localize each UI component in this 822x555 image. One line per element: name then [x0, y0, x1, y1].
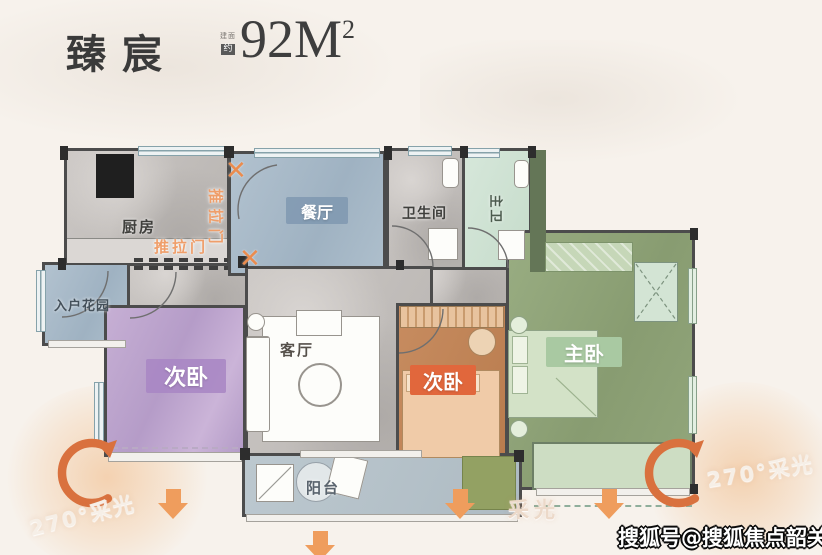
- label-entry-garden: 入户花园: [54, 295, 110, 314]
- window-sill: [48, 340, 126, 348]
- label-living: 客厅: [280, 339, 314, 360]
- daylight-label: 采光: [508, 494, 560, 524]
- sink: [498, 230, 525, 260]
- page-title: 臻宸: [66, 22, 178, 80]
- area-prefix-bottom: 约: [221, 44, 234, 55]
- label-bedroom-middle: 次卧: [410, 365, 476, 395]
- window: [688, 268, 697, 324]
- pillow: [512, 336, 528, 364]
- planter-box: [256, 464, 294, 502]
- tv-cabinet: [296, 310, 342, 336]
- nightstand: [510, 420, 528, 438]
- wall-block: [396, 260, 404, 270]
- wall-block: [460, 146, 468, 158]
- label-bathroom: 卫生间: [402, 203, 447, 223]
- label-kitchen: 厨房: [122, 216, 156, 237]
- window: [138, 146, 230, 156]
- watermark: 搜狐号@搜狐焦点韶关站: [618, 522, 822, 552]
- window: [254, 148, 380, 158]
- bay-window-sill: [108, 452, 242, 462]
- label-master-bedroom: 主卧: [546, 337, 622, 367]
- wall-block: [690, 484, 698, 494]
- balcony-sill: [246, 514, 518, 522]
- area-prefix-top: 建面: [220, 31, 236, 41]
- demolish-x-icon: ✕: [225, 156, 247, 186]
- ceiling-fixture: [468, 328, 496, 356]
- sliding-door-note-horizontal: 推拉门: [154, 236, 208, 257]
- toilet: [514, 160, 529, 188]
- wall-block: [514, 450, 524, 462]
- bay-window-dash: [112, 447, 238, 449]
- floorplan-page: 臻宸 建面 约 92M2: [0, 0, 822, 555]
- master-bay-balcony: [532, 442, 692, 490]
- toilet: [442, 158, 459, 188]
- window: [36, 270, 46, 332]
- window: [466, 148, 500, 158]
- label-master-bathroom: 主卫: [488, 195, 507, 235]
- marble-vein: [0, 0, 420, 150]
- wall-block: [58, 258, 66, 270]
- wall-block: [60, 146, 68, 160]
- wall-block: [690, 228, 698, 240]
- closet: [634, 262, 678, 322]
- window: [94, 382, 104, 444]
- wall-block: [384, 146, 392, 160]
- sliding-door-track: [134, 266, 228, 270]
- coffee-table: [298, 363, 342, 407]
- daylight-arrow-down-icon: [166, 489, 181, 503]
- sink: [428, 228, 458, 260]
- label-balcony: 阳台: [306, 477, 340, 498]
- daylight-arrow-down-icon: [602, 489, 617, 503]
- wall-block: [240, 448, 250, 460]
- label-dining: 餐厅: [286, 197, 348, 224]
- closet-strip: [545, 242, 633, 272]
- daylight-arrow-down-icon: [313, 531, 328, 545]
- sliding-door-note-vertical: 推拉门: [206, 189, 227, 265]
- demolish-x-icon: ✕: [239, 244, 261, 274]
- green-wall-column: [530, 150, 546, 272]
- wardrobe: [400, 306, 504, 328]
- fridge: [96, 154, 134, 198]
- area-prefix: 建面 约: [220, 31, 236, 55]
- pillow: [512, 366, 528, 394]
- sliding-glass-door: [300, 450, 422, 458]
- window: [688, 376, 697, 434]
- wall-block: [528, 146, 536, 158]
- label-bedroom-left: 次卧: [146, 359, 226, 393]
- sofa: [246, 336, 270, 432]
- floor-lamp: [247, 313, 265, 331]
- daylight-arrow-down-icon: [453, 489, 468, 503]
- nightstand: [510, 316, 528, 334]
- area-value: 92M2: [240, 8, 355, 70]
- window: [408, 146, 452, 156]
